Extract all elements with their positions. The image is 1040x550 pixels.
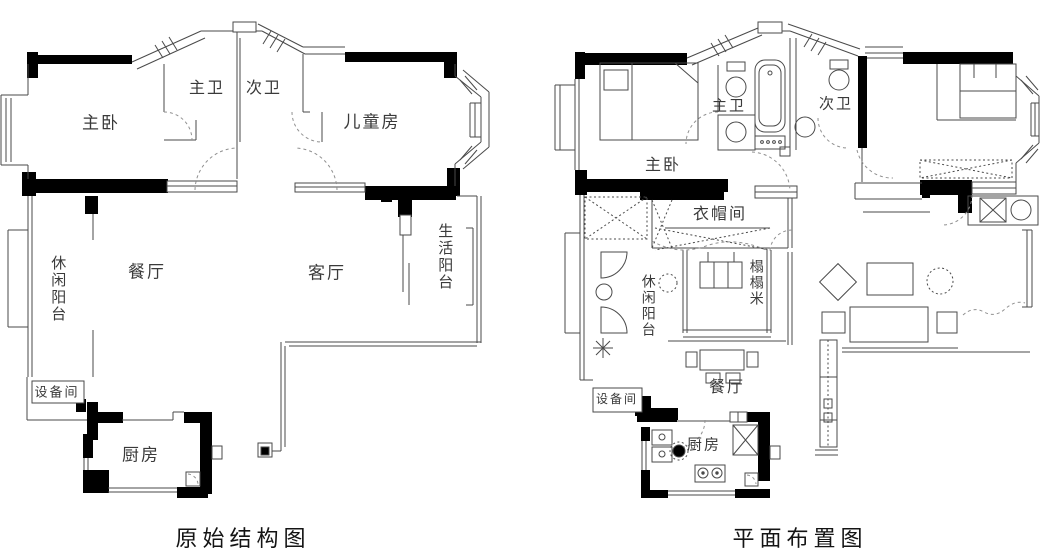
master-toilet-icon [726,62,746,97]
room-label-living-left: 客厅 [308,265,346,282]
stove-icon [695,465,725,482]
room-label-leisure-balcony-right: 休闲阳台 [640,274,655,338]
room-label-tatami-right: 榻榻米 [748,259,763,307]
left-door-swings [164,112,337,484]
fridge-icon [733,425,758,455]
room-label-master-bedroom-left: 主卧 [82,115,120,132]
room-label-master-bath-right: 主卫 [712,99,746,114]
second-sink-icon [795,117,815,137]
room-label-equipment-left: 设备间 [34,386,79,399]
right-floor-plan [555,22,1039,498]
room-label-master-bedroom-right: 主卧 [645,158,681,174]
room-label-leisure-balcony-left: 休闲阳台 [49,255,66,323]
room-label-dining-left: 餐厅 [128,264,166,281]
room-label-second-bath-left: 次卫 [246,81,282,97]
room-label-second-bath-right: 次卫 [819,97,853,112]
second-toilet-icon [829,60,849,90]
room-label-kitchen-left: 厨房 [122,447,160,464]
balcony-chairs-icon [596,252,627,333]
master-sink-icon [718,115,755,150]
floor-plan-canvas: 主卧 主卫 次卫 儿童房 休闲阳台 餐厅 客厅 生活阳台 设备间 厨房 原始结构… [0,0,1040,550]
sofa-icon [822,307,957,342]
plant-icon [593,338,613,358]
kitchen-sink-icon [652,430,688,462]
armchair-icon [927,268,953,294]
coffee-table-icon [820,263,913,300]
room-label-cloakroom-right: 衣帽间 [693,207,747,223]
room-label-dining-right: 餐厅 [709,380,745,396]
room-label-kitchen-right: 厨房 [687,438,721,453]
room-label-master-bath-left: 主卫 [189,81,225,97]
tatami-table-icon [700,252,742,288]
right-thin-walls [555,22,1039,495]
left-plan-title: 原始结构图 [175,521,310,550]
kids-bed-icon [960,64,1016,118]
washer-counter-icon [968,196,1038,225]
round-table-icon [659,274,677,292]
right-plan-title: 平面布置图 [732,521,867,550]
kids-wardrobe-icon [920,160,1012,178]
room-label-kids-room-left: 儿童房 [344,114,401,131]
master-bed-icon [600,63,698,140]
bedroom-wardrobe-icon [585,197,647,239]
room-label-equipment-right: 设备间 [596,393,638,405]
tv-cabinet-icon [815,340,838,455]
right-door-swings [652,112,1025,484]
room-label-utility-balcony-left: 生活阳台 [436,223,453,291]
bathtub-icon [755,60,785,149]
